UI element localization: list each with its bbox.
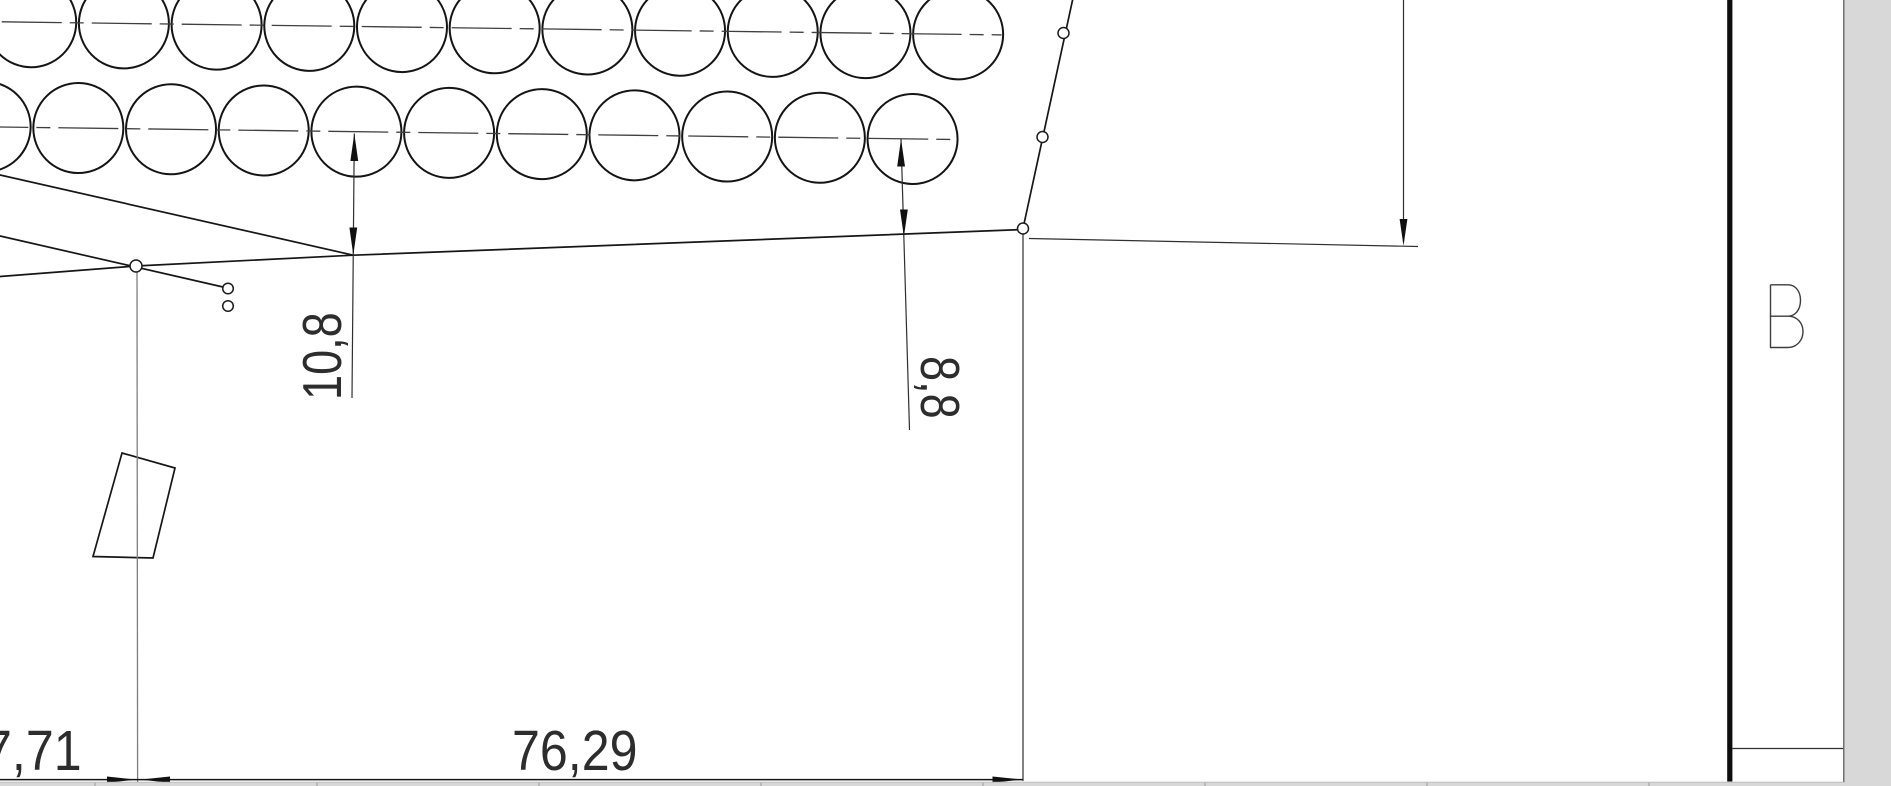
node-circle [223, 283, 234, 294]
dim-text-8-8: 8,8 [909, 356, 971, 419]
node-circle [1037, 132, 1048, 143]
node-circle [223, 301, 234, 312]
node-circle [1058, 28, 1069, 39]
dim-text-10-8: 10,8 [291, 312, 353, 400]
node-circle [1018, 223, 1029, 234]
dim-text-76-29: 76,29 [512, 719, 637, 783]
cad-viewport: 10,8 8,8 7,71 76,29 [0, 0, 1891, 786]
node-circle [130, 260, 142, 272]
outside-page-right [1845, 0, 1891, 786]
drawing-canvas[interactable]: 10,8 8,8 7,71 76,29 [0, 0, 1891, 786]
extension-line-left [137, 272, 138, 782]
dim-text-7-71: 7,71 [0, 719, 82, 783]
sheet-frame-border [1727, 0, 1732, 782]
